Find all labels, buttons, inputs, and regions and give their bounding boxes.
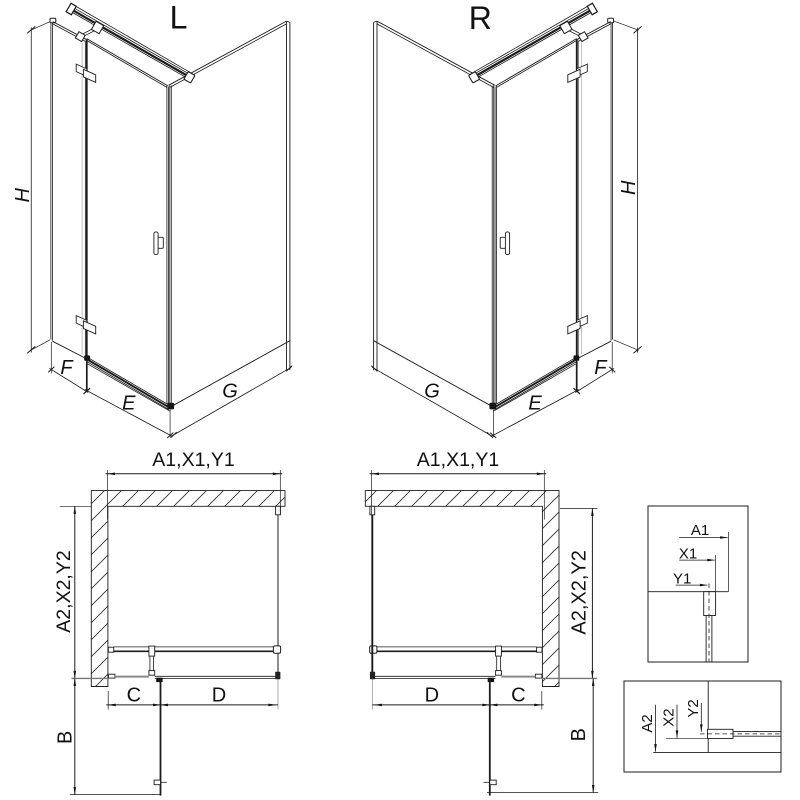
svg-text:G: G (222, 381, 238, 403)
svg-text:H: H (12, 188, 34, 203)
svg-text:C: C (127, 685, 141, 707)
svg-text:X1: X1 (679, 546, 697, 563)
svg-text:A2,X2,Y2: A2,X2,Y2 (569, 550, 591, 635)
svg-text:B: B (54, 731, 76, 744)
svg-text:R: R (469, 0, 492, 36)
svg-text:A1: A1 (691, 522, 709, 539)
svg-text:C: C (511, 685, 525, 707)
svg-text:G: G (424, 381, 440, 403)
svg-text:E: E (122, 392, 136, 414)
svg-text:A1,X1,Y1: A1,X1,Y1 (152, 449, 234, 471)
svg-text:E: E (528, 392, 542, 414)
svg-text:L: L (170, 0, 188, 36)
svg-text:F: F (594, 357, 608, 379)
svg-text:X2: X2 (660, 708, 677, 726)
svg-text:A1,X1,Y1: A1,X1,Y1 (417, 449, 499, 471)
svg-text:B: B (568, 728, 590, 741)
svg-text:A2,X2,Y2: A2,X2,Y2 (53, 550, 75, 632)
svg-text:D: D (212, 685, 226, 707)
svg-text:A2: A2 (639, 714, 656, 732)
svg-text:H: H (618, 180, 640, 195)
svg-text:Y2: Y2 (685, 699, 702, 717)
svg-text:D: D (425, 685, 439, 707)
svg-text:F: F (60, 357, 74, 379)
svg-text:Y1: Y1 (673, 571, 691, 588)
